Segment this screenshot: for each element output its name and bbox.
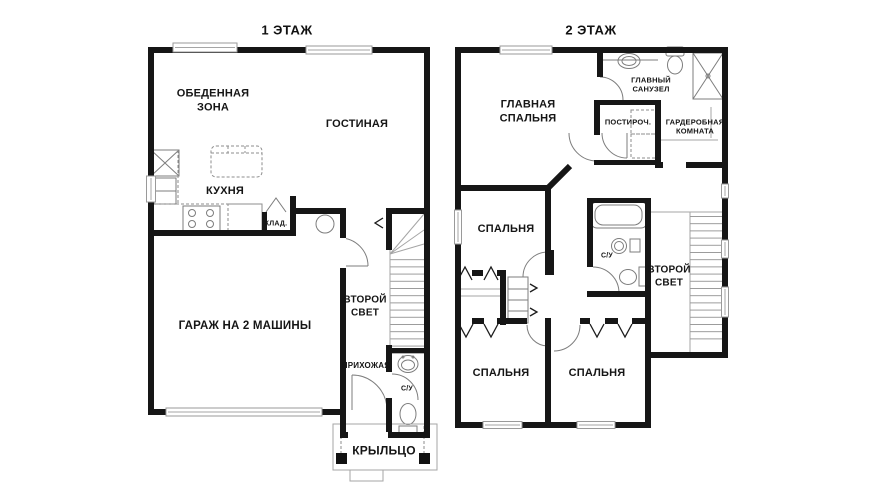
room-label-porch: КРЫЛЬЦО [352,444,416,459]
room-label-wc-f2: С/У [601,253,613,262]
room-label-pantry: КЛАД. [265,221,287,230]
floor2-title: 2 ЭТАЖ [565,23,616,38]
room-label-bedroom-mid: СПАЛЬНЯ [478,223,535,237]
room-label-kitchen: КУХНЯ [206,185,244,199]
room-label-living: ГОСТИНАЯ [326,118,388,132]
floor1-title: 1 ЭТАЖ [261,23,312,38]
room-label-wc-f1: С/У [401,386,413,395]
room-label-wardrobe: ГАРДЕРОБНАЯ КОМНАТА [666,118,725,137]
room-label-garage: ГАРАЖ НА 2 МАШИНЫ [179,319,312,333]
room-label-bedroom-right: СПАЛЬНЯ [569,367,626,381]
floor-plan-drawing [0,0,880,498]
room-label-bedroom-left: СПАЛЬНЯ [473,367,530,381]
room-label-hallway: ПРИХОЖАЯ [342,361,390,371]
room-label-laundry: ПОСТИРОЧ. [605,117,651,126]
room-label-second-light-f2: ВТОРОЙ СВЕТ [647,265,690,290]
room-label-master-bath: ГЛАВНЫЙ САНУЗЕЛ [631,76,671,95]
room-label-dining: ОБЕДЕННАЯ ЗОНА [177,87,250,115]
floor-plan-canvas: 1 ЭТАЖ 2 ЭТАЖ ОБЕДЕННАЯ ЗОНА ГОСТИНАЯ КУ… [0,0,880,498]
room-label-master-bedroom: ГЛАВНАЯ СПАЛЬНЯ [500,98,557,126]
room-label-second-light-f1: ВТОРОЙ СВЕТ [343,295,386,320]
